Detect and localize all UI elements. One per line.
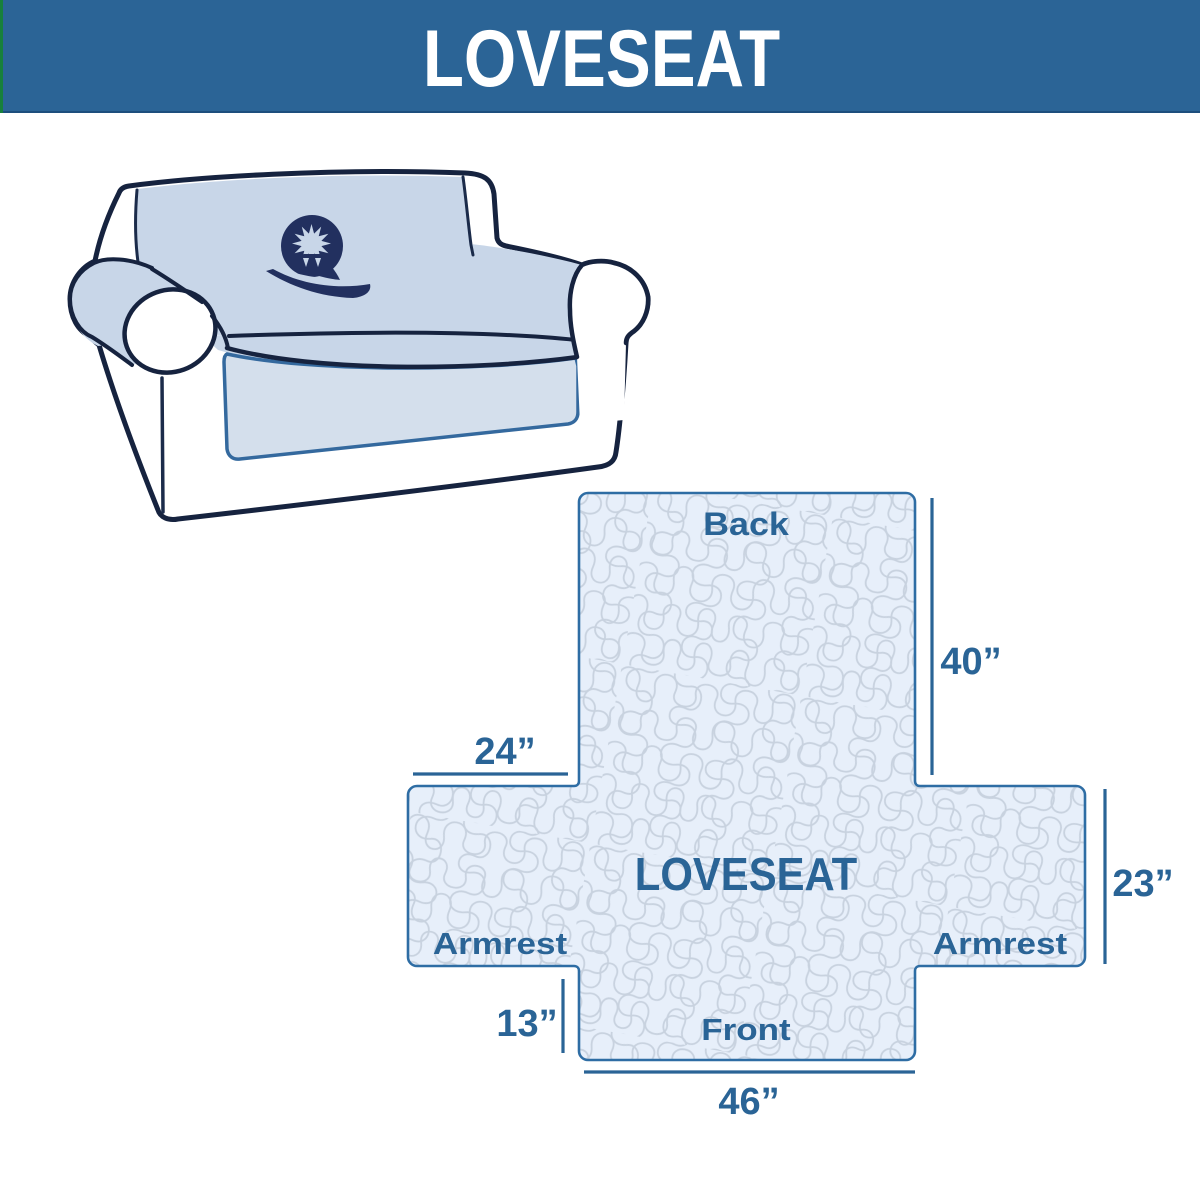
svg-text:13”: 13” xyxy=(496,1003,557,1045)
svg-text:40”: 40” xyxy=(940,641,1001,683)
svg-text:24”: 24” xyxy=(474,731,535,773)
svg-text:Armrest: Armrest xyxy=(433,927,567,962)
svg-text:23”: 23” xyxy=(1112,863,1173,905)
svg-text:Back: Back xyxy=(703,507,789,543)
svg-text:Armrest: Armrest xyxy=(933,927,1067,962)
svg-text:Front: Front xyxy=(701,1013,790,1048)
svg-text:46”: 46” xyxy=(718,1081,779,1123)
svg-text:LOVESEAT: LOVESEAT xyxy=(635,849,858,900)
